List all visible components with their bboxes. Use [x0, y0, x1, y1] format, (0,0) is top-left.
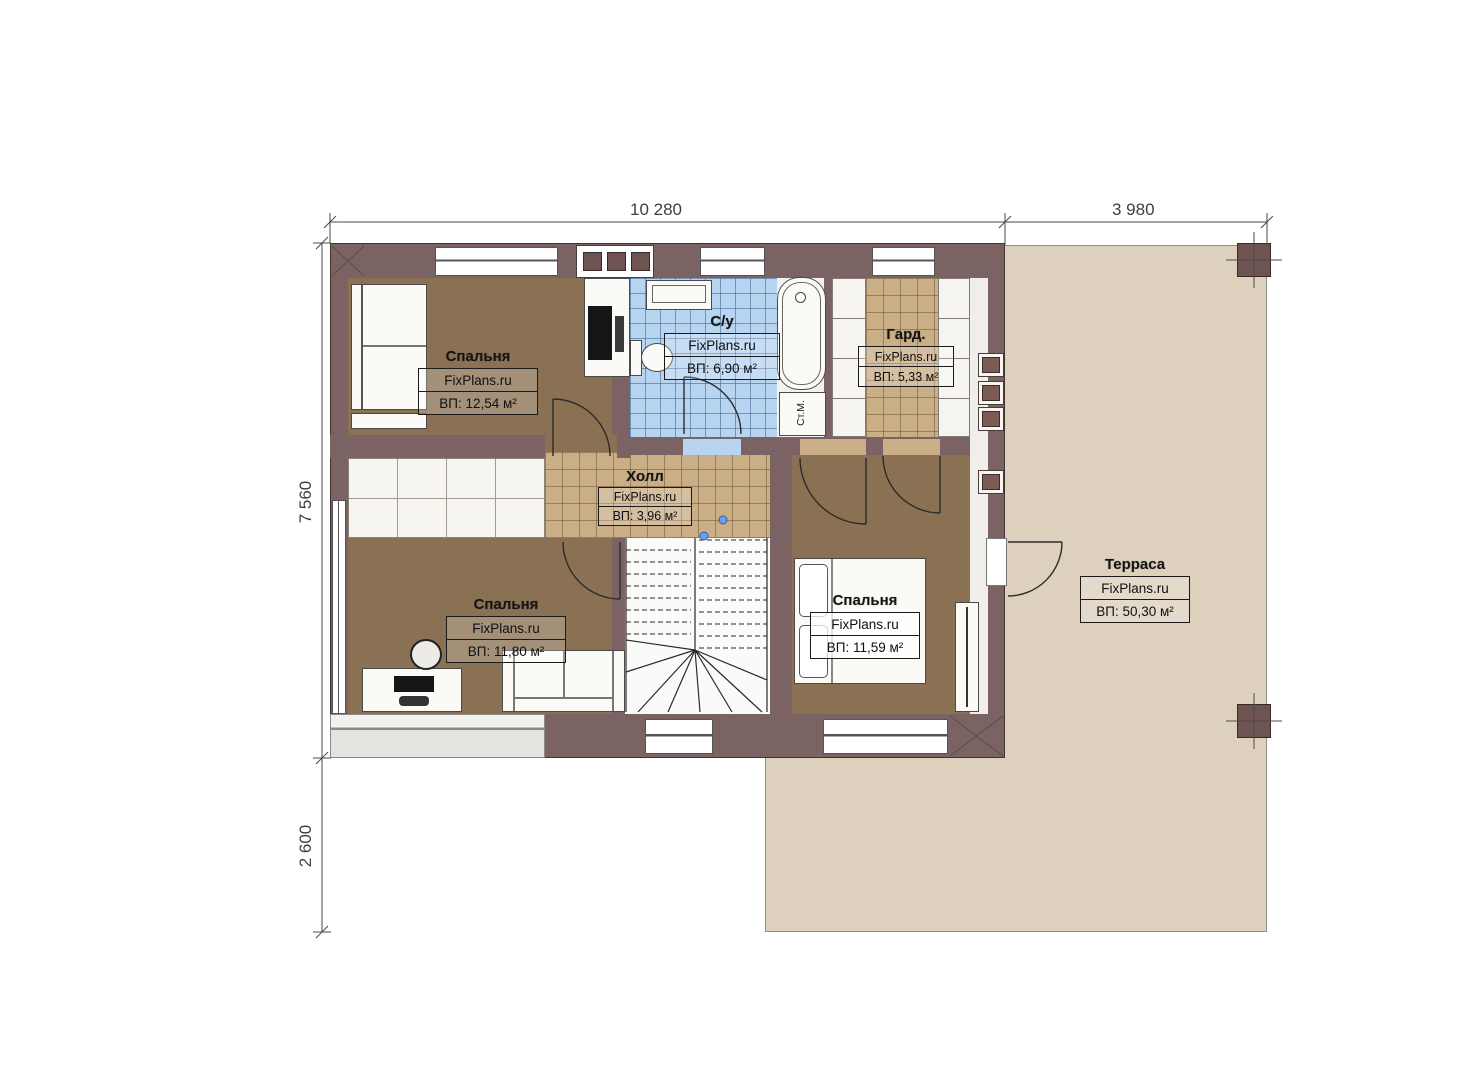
room-name: С/у	[664, 313, 780, 330]
wall-duct-1	[978, 353, 1004, 377]
terrace-pillar-bottom	[1237, 704, 1271, 738]
dim-left-main: 7 560	[296, 474, 316, 530]
keyboard	[615, 316, 624, 352]
office-chair	[410, 639, 442, 670]
room-label-terrace: Терраса FixPlans.ru ВП: 50,30 м²	[1080, 556, 1190, 623]
wall-duct-3	[978, 407, 1004, 431]
window-bottom-1	[645, 719, 713, 754]
room-name: Гард.	[858, 326, 954, 343]
room-area: ВП: 50,30 м²	[1081, 599, 1189, 622]
wardrobe-unit	[955, 602, 979, 712]
sink	[646, 280, 712, 310]
window-top-2	[700, 247, 765, 276]
bathtub	[777, 277, 826, 390]
room-label-bathroom: С/у FixPlans.ru ВП: 6,90 м²	[664, 313, 780, 380]
window-bottom-left	[330, 714, 545, 758]
chimney-flue-1	[583, 252, 602, 271]
room-area: ВП: 5,33 м²	[859, 366, 953, 386]
bathroom-door-opening	[683, 439, 741, 455]
room-brand: FixPlans.ru	[419, 369, 537, 391]
floor-plan: Ст.М.	[0, 0, 1473, 1080]
room-name: Спальня	[418, 348, 538, 365]
terrace-door-opening	[986, 538, 1007, 586]
terrace-pillar-top	[1237, 243, 1271, 277]
stairwell-floor	[625, 538, 770, 714]
laptop	[394, 676, 434, 692]
room-label-bedroom1: Спальня FixPlans.ru ВП: 12,54 м²	[418, 348, 538, 415]
washing-machine: Ст.М.	[779, 392, 826, 436]
desk-accessory	[399, 696, 429, 706]
room-label-wardrobe: Гард. FixPlans.ru ВП: 5,33 м²	[858, 326, 954, 387]
monitor	[588, 306, 612, 360]
room-brand: FixPlans.ru	[665, 334, 779, 356]
wall-duct-2	[978, 381, 1004, 405]
window-top-3	[872, 247, 935, 276]
room-name: Спальня	[446, 596, 566, 613]
window-bottom-2	[823, 719, 948, 754]
room-label-hall: Холл FixPlans.ru ВП: 3,96 м²	[598, 468, 692, 526]
wall-door-jamb	[617, 435, 630, 458]
room-name: Спальня	[810, 592, 920, 609]
dim-left-lower: 2 600	[296, 818, 316, 874]
bed-bench	[351, 413, 427, 429]
chimney-flue-2	[607, 252, 626, 271]
room-brand: FixPlans.ru	[599, 488, 691, 506]
window-left	[332, 500, 346, 714]
room-area: ВП: 11,59 м²	[811, 635, 919, 658]
room-brand: FixPlans.ru	[447, 617, 565, 639]
wardrobe-door-opening	[883, 439, 940, 455]
wall-duct-4	[978, 470, 1004, 494]
bed-single	[351, 284, 427, 410]
dim-top-terrace: 3 980	[1112, 200, 1155, 220]
room-brand: FixPlans.ru	[811, 613, 919, 635]
wall-stairs-right	[770, 455, 792, 714]
room-area: ВП: 3,96 м²	[599, 506, 691, 525]
room-area: ВП: 12,54 м²	[419, 391, 537, 414]
room-name: Холл	[598, 468, 692, 485]
room-label-bedroom3: Спальня FixPlans.ru ВП: 11,59 м²	[810, 592, 920, 659]
dim-top-main: 10 280	[630, 200, 682, 220]
room-brand: FixPlans.ru	[859, 347, 953, 366]
bedroom3-door-opening	[800, 439, 866, 455]
room-name: Терраса	[1080, 556, 1190, 573]
wall-below-bedroom1	[330, 435, 545, 458]
chimney-flue-3	[631, 252, 650, 271]
room-brand: FixPlans.ru	[1081, 577, 1189, 599]
built-in-closet	[348, 458, 545, 538]
room-label-bedroom2: Спальня FixPlans.ru ВП: 11,80 м²	[446, 596, 566, 663]
window-top-1	[435, 247, 558, 276]
washing-machine-label: Ст.М.	[795, 400, 807, 426]
room-area: ВП: 11,80 м²	[447, 639, 565, 662]
room-area: ВП: 6,90 м²	[665, 356, 779, 379]
